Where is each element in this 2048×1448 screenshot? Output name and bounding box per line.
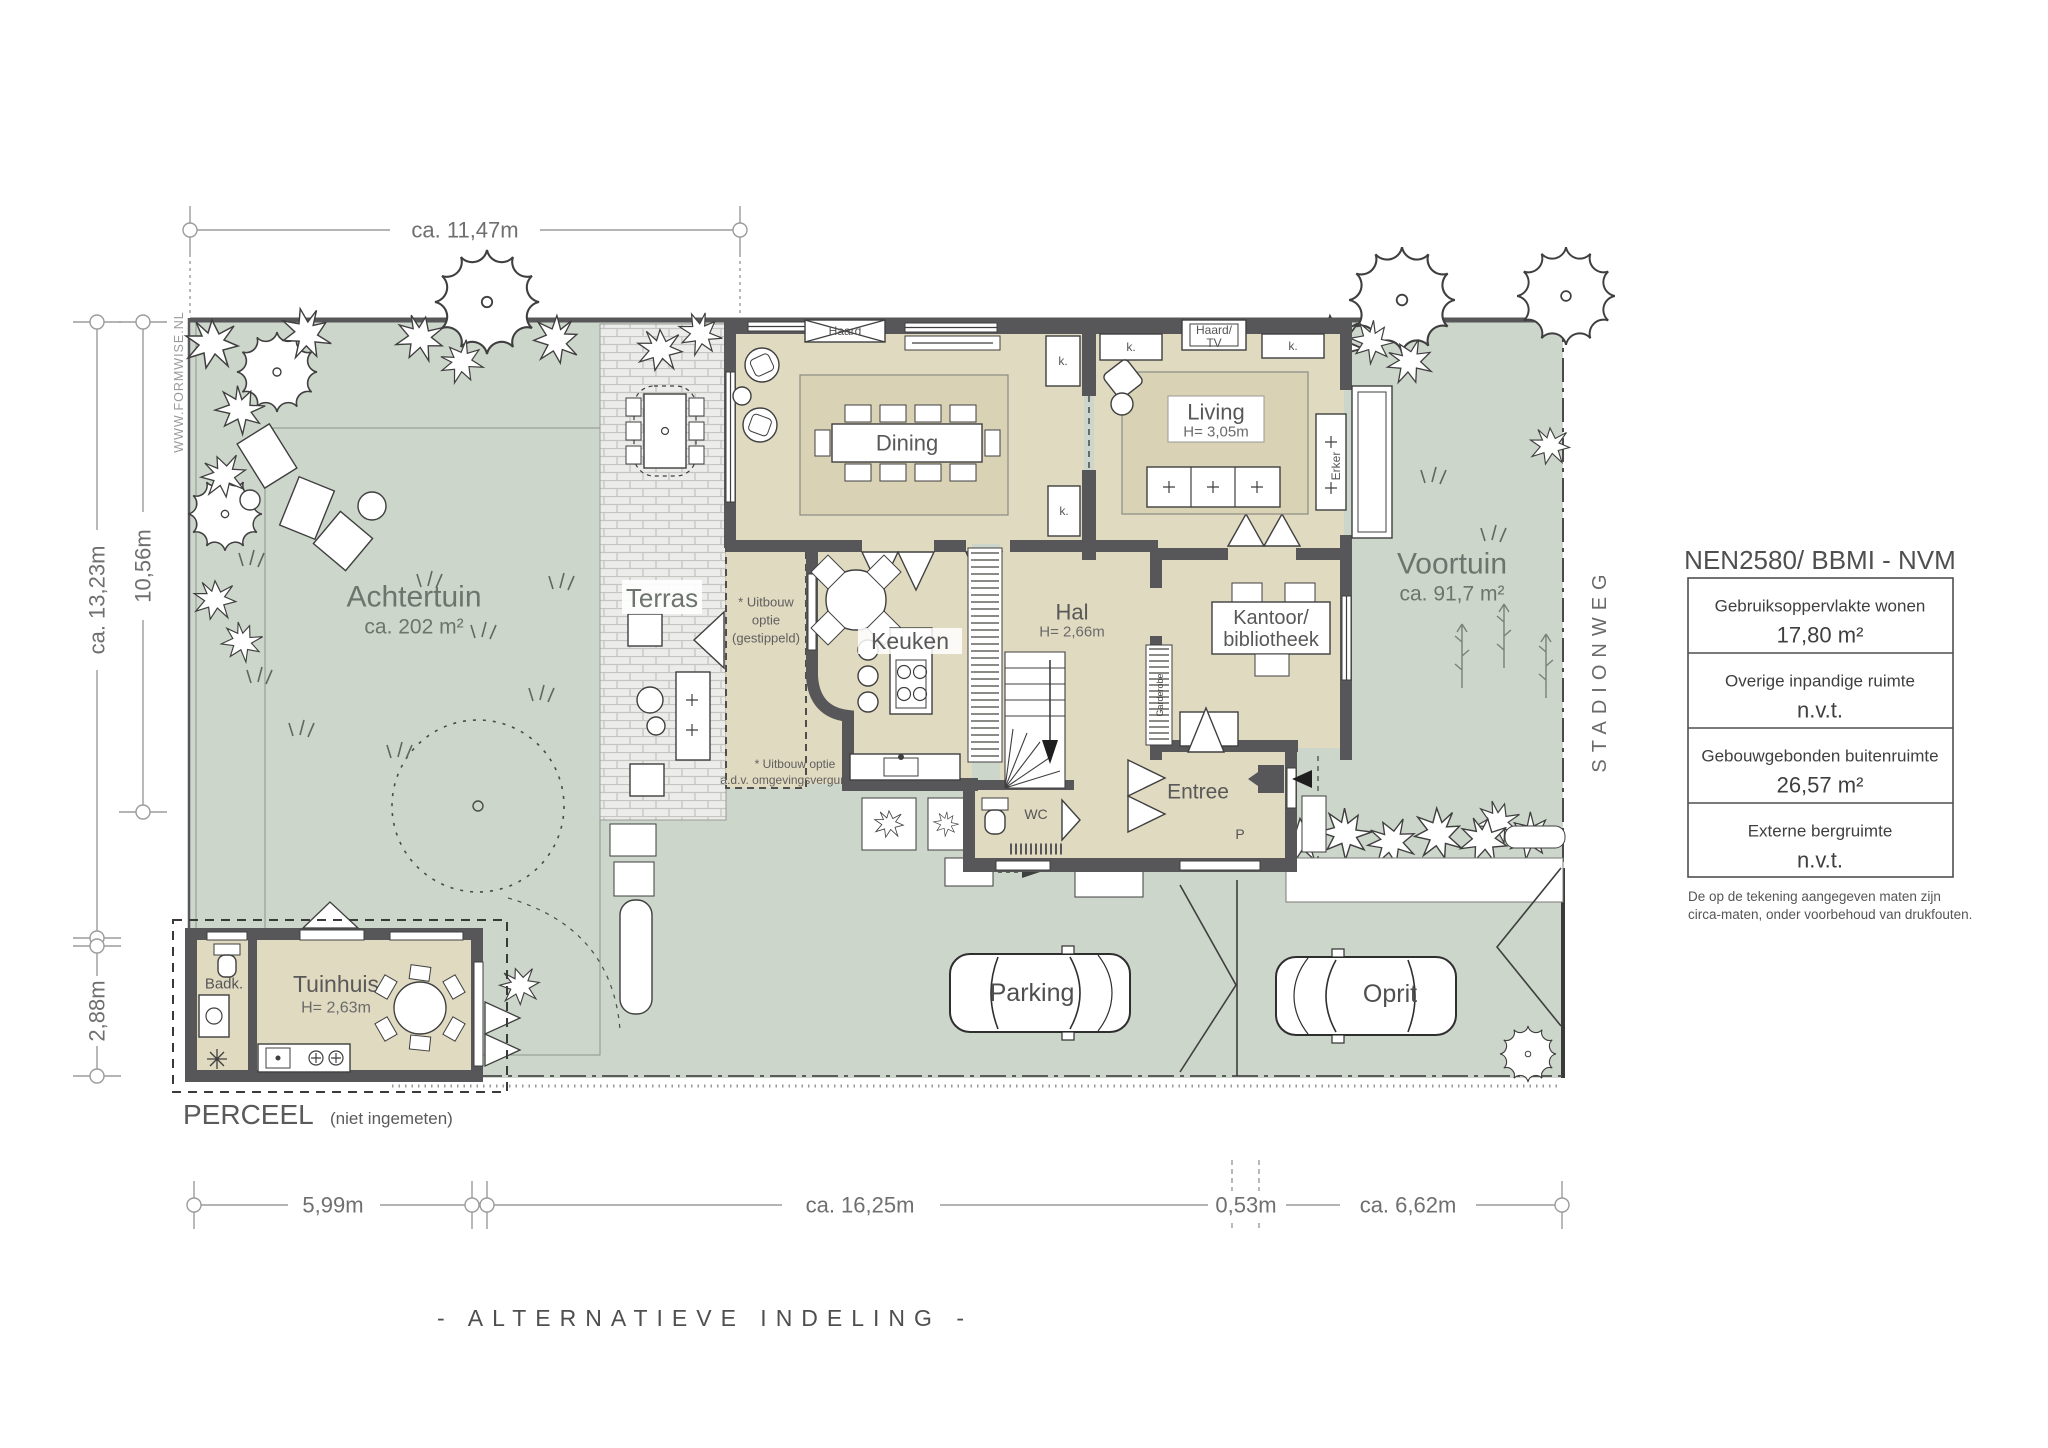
legend-row-value: 26,57 m² <box>1777 773 1864 798</box>
closet-label: k. <box>1058 354 1067 368</box>
tuinhuis-table <box>394 982 446 1034</box>
parking-spot-label: P <box>1235 826 1244 842</box>
achtertuin-label: Achtertuin <box>346 581 481 614</box>
spiral-stair <box>1005 652 1065 788</box>
legend-row-value: n.v.t. <box>1797 698 1843 723</box>
drawing-title: - ALTERNATIEVE INDELING - <box>437 1305 973 1331</box>
legend-row-label: Overige inpandige ruimte <box>1725 672 1915 691</box>
office-label-1: Kantoor/ <box>1233 607 1309 629</box>
voortuin-area: ca. 91,7 m² <box>1399 583 1504 606</box>
dim-bottom-right-label: ca. 6,62m <box>1360 1193 1457 1218</box>
living-height: H= 3,05m <box>1183 424 1248 441</box>
watermark: WWW.FORMWISE.NL <box>172 311 186 452</box>
dim-bottom-gap-label: 0,53m <box>1215 1193 1276 1218</box>
dim-bottom: 5,99m ca. 16,25m 0,53m ca. 6,62m <box>187 1160 1569 1229</box>
legend-row-label: Gebouwgebonden buitenruimte <box>1701 747 1938 766</box>
legend-row-label: Externe bergruimte <box>1748 822 1893 841</box>
dim-left-tuinhuis-label: 2,88m <box>85 980 110 1041</box>
living-furniture: Living H= 3,05m <box>1102 358 1308 514</box>
hall-label: Hal <box>1055 600 1088 625</box>
legend-panel: NEN2580/ BBMI - NVM Gebruiksoppervlakte … <box>1684 545 1972 922</box>
closet-label: k. <box>1288 339 1297 353</box>
dim-left-total-label: ca. 13,23m <box>85 546 110 655</box>
uitbouw-note-1: * Uitbouw <box>738 595 794 610</box>
street-name: STADIONWEG <box>1589 567 1611 772</box>
fireplace-tv-living: Haard/ TV <box>1182 320 1246 350</box>
terras-step <box>614 862 654 896</box>
closet-label: k. <box>1126 340 1135 354</box>
tuinhuis: Badk. Tuinhuis H= 2,63m <box>185 902 520 1082</box>
light-point-icon <box>207 1049 227 1069</box>
terras-label: Terras <box>626 583 698 613</box>
fireplace-tv-label-1: Haard/ <box>1196 323 1233 337</box>
legend-row-value: n.v.t. <box>1797 848 1843 873</box>
floorplan-drawing: Terras Achtertuin ca. 202 m² Voortuin ca… <box>0 0 2048 1448</box>
wall-east-living-a <box>1340 318 1352 390</box>
dim-top-label: ca. 11,47m <box>411 218 518 243</box>
fireplace-dining: Haard <box>805 320 885 342</box>
legend-title: NEN2580/ BBMI - NVM <box>1684 545 1956 575</box>
dim-left-garden-label: 10,56m <box>131 529 156 602</box>
garden-walkway <box>620 900 652 1014</box>
perceel-label: PERCEEL <box>183 1099 314 1130</box>
achtertuin-area: ca. 202 m² <box>364 616 463 639</box>
uitbouw-note-1b: optie <box>752 613 780 628</box>
dim-left-tuinhuis: 2,88m <box>73 939 121 1083</box>
legend-footnote-2: circa-maten, onder voorbehoud van drukfo… <box>1688 907 1972 922</box>
uitbouw-note-2: * Uitbouw optie <box>755 757 836 771</box>
dim-left-total: ca. 13,23m <box>73 315 121 945</box>
floorplan-canvas: Terras Achtertuin ca. 202 m² Voortuin ca… <box>0 0 2048 1448</box>
fireplace-tv-label-2: TV <box>1206 336 1221 350</box>
fireplace-label: Haard <box>829 324 862 338</box>
hall-height: H= 2,66m <box>1039 624 1104 641</box>
erker-label: Erker <box>1329 452 1343 481</box>
legend-row-label: Gebruiksoppervlakte wonen <box>1715 597 1926 616</box>
terras-step <box>610 824 656 856</box>
uitbouw-option-area <box>726 548 806 788</box>
dining-label: Dining <box>876 431 938 456</box>
dim-bottom-left-label: 5,99m <box>302 1193 363 1218</box>
uitbouw-note-1c: (gestippeld) <box>732 631 800 646</box>
tuinhuis-height: H= 2,63m <box>301 1000 371 1017</box>
terras-dining-set <box>626 386 704 476</box>
living-label: Living <box>1187 400 1244 425</box>
voortuin-label: Voortuin <box>1397 548 1507 581</box>
perceel-note: (niet ingemeten) <box>330 1109 453 1128</box>
legend-footnote-1: De op de tekening aangegeven maten zijn <box>1688 889 1941 904</box>
front-door <box>1287 768 1296 808</box>
wardrobe-label: Garderobe <box>1155 673 1165 716</box>
dim-left-garden: 10,56m <box>119 315 167 819</box>
entry-label: Entree <box>1167 781 1229 804</box>
legend-row-value: 17,80 m² <box>1777 623 1864 648</box>
parking-label: Parking <box>990 979 1075 1007</box>
tuinhuis-label: Tuinhuis <box>293 971 379 997</box>
bathroom-label: Badk. <box>205 976 243 993</box>
closet-label: k. <box>1059 504 1068 518</box>
bench <box>1505 826 1565 848</box>
wc-label: WC <box>1024 806 1047 822</box>
entry-step <box>1302 796 1326 852</box>
oprit-label: Oprit <box>1363 980 1417 1008</box>
office-label-2: bibliotheek <box>1223 629 1320 651</box>
kitchen-label: Keuken <box>871 628 949 654</box>
dim-bottom-house-label: ca. 16,25m <box>806 1193 915 1218</box>
